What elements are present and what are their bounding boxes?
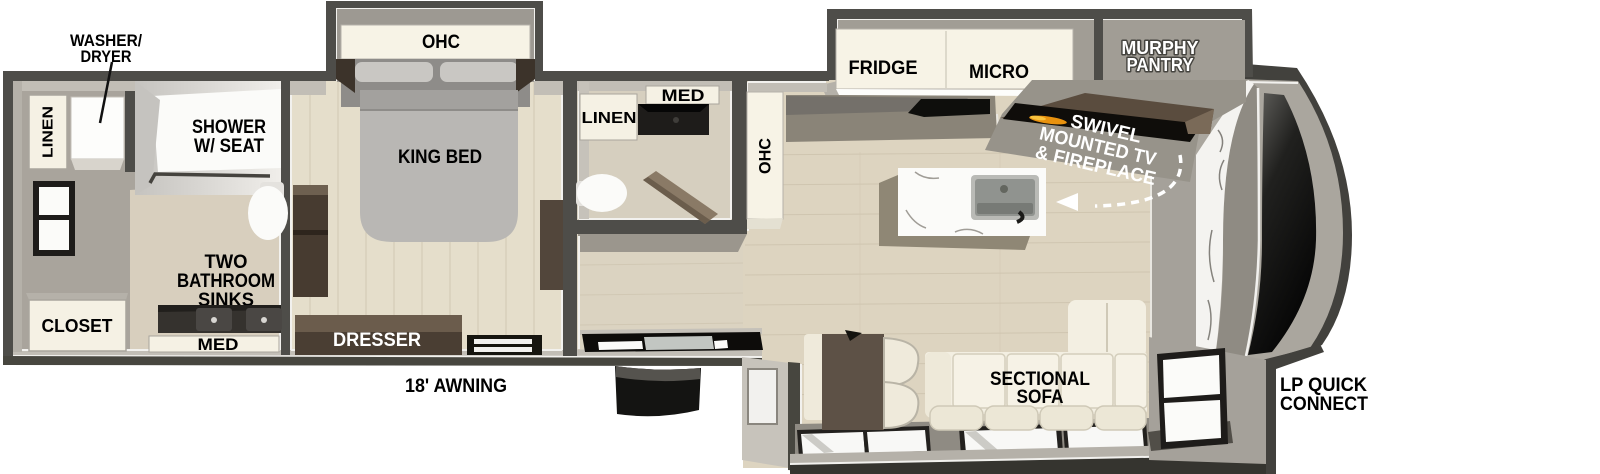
svg-text:BATHROOM: BATHROOM bbox=[177, 271, 275, 292]
svg-text:OHC: OHC bbox=[756, 138, 775, 174]
svg-text:LP QUICK: LP QUICK bbox=[1280, 375, 1367, 396]
svg-text:LINEN: LINEN bbox=[40, 106, 57, 158]
svg-text:KING BED: KING BED bbox=[398, 147, 482, 168]
svg-text:FRIDGE: FRIDGE bbox=[849, 58, 918, 79]
svg-text:LINEN: LINEN bbox=[582, 110, 637, 127]
svg-text:SOFA: SOFA bbox=[1017, 387, 1064, 408]
svg-text:W/ SEAT: W/ SEAT bbox=[194, 136, 264, 157]
svg-text:CONNECT: CONNECT bbox=[1280, 394, 1368, 415]
svg-text:18' AWNING: 18' AWNING bbox=[405, 376, 507, 397]
svg-text:MED: MED bbox=[662, 86, 705, 105]
svg-text:CLOSET: CLOSET bbox=[42, 316, 113, 336]
svg-text:DRESSER: DRESSER bbox=[333, 330, 421, 351]
svg-text:DRYER: DRYER bbox=[81, 47, 132, 66]
svg-text:MICRO: MICRO bbox=[969, 62, 1029, 83]
svg-text:OHC: OHC bbox=[422, 32, 460, 53]
svg-text:MED: MED bbox=[198, 335, 239, 354]
svg-text:TWO: TWO bbox=[205, 252, 248, 273]
svg-text:PANTRY: PANTRY bbox=[1127, 55, 1194, 75]
svg-text:SHOWER: SHOWER bbox=[192, 117, 266, 138]
